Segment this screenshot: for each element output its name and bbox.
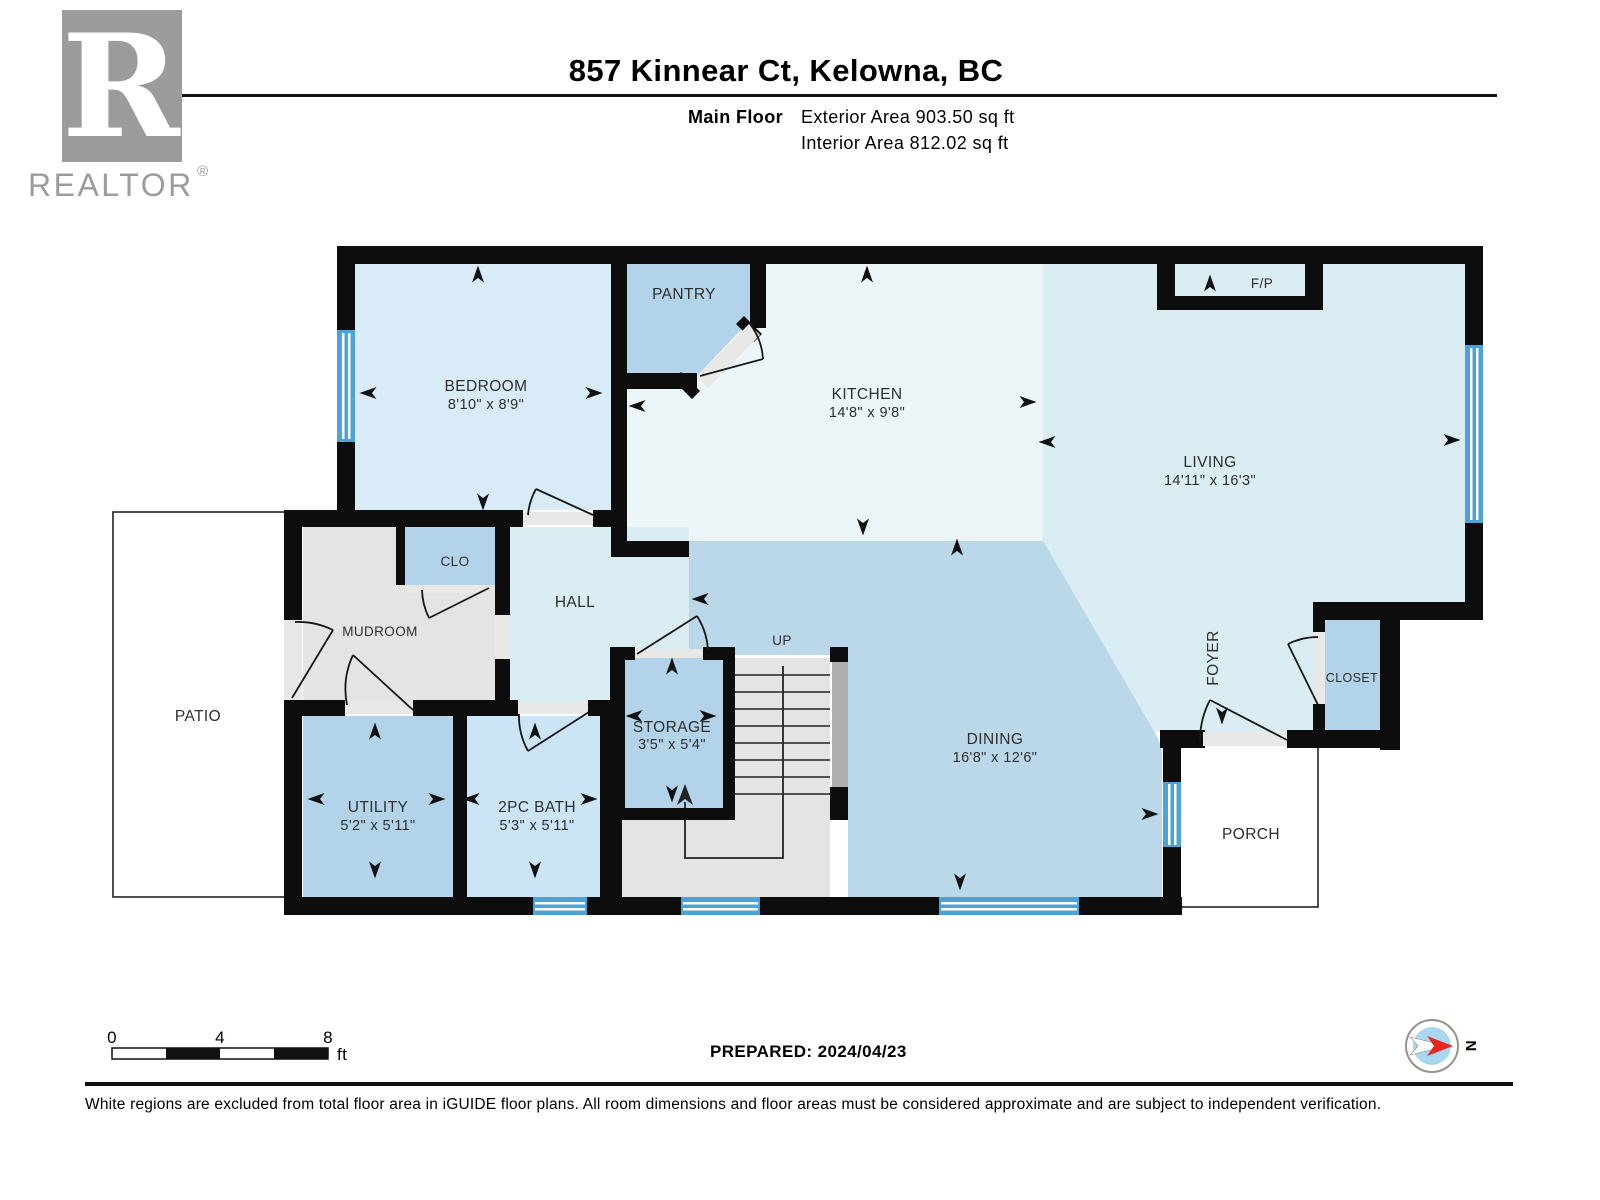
interior-area-label: Interior Area 812.02 sq ft <box>801 133 1009 153</box>
realtor-logo: R REALTOR ® <box>28 4 208 203</box>
realtor-logo-wordmark: REALTOR <box>28 167 194 203</box>
hall-label: HALL <box>555 594 595 611</box>
foyer-label: FOYER <box>1205 630 1222 685</box>
utility-dims: 5'2" x 5'11" <box>340 818 415 834</box>
porch-label: PORCH <box>1222 826 1280 843</box>
clo-label: CLO <box>441 554 470 569</box>
fireplace-label: F/P <box>1251 276 1273 291</box>
bedroom-window <box>337 330 355 442</box>
bath-label: 2PC BATH <box>498 799 576 816</box>
porch-side-window <box>1163 782 1181 847</box>
scale-tick-8: 8 <box>323 1028 333 1047</box>
patio-area <box>113 512 285 897</box>
pantry-label: PANTRY <box>652 286 716 303</box>
kitchen-dims: 14'8" x 9'8" <box>829 405 905 421</box>
closet-label: CLOSET <box>1326 671 1378 685</box>
utility-label: UTILITY <box>348 799 409 816</box>
dining-window <box>939 897 1079 915</box>
header: R REALTOR ® 857 Kinnear Ct, Kelowna, BC … <box>28 4 1497 203</box>
scale-tick-4: 4 <box>215 1028 225 1047</box>
patio-door-threshold <box>284 620 302 700</box>
patio-label: PATIO <box>175 708 221 725</box>
bath-dims: 5'3" x 5'11" <box>499 818 574 834</box>
page-title: 857 Kinnear Ct, Kelowna, BC <box>569 53 1004 88</box>
mudroom-label: MUDROOM <box>342 624 418 639</box>
stair-handrail <box>832 662 848 787</box>
living-dims: 14'11" x 16'3" <box>1164 473 1256 489</box>
prepared-date-label: PREPARED: 2024/04/23 <box>710 1042 907 1061</box>
header-rule <box>75 94 1497 97</box>
bath-door-threshold <box>518 702 588 714</box>
compass-icon: N <box>1406 1020 1479 1072</box>
landing-window <box>681 897 760 915</box>
stairs-up-label: UP <box>772 633 792 648</box>
storage-label: STORAGE <box>633 719 711 736</box>
bedroom-door-threshold <box>523 512 593 525</box>
mudroom-hall-opening <box>495 615 510 659</box>
floor-plan-page: R REALTOR ® 857 Kinnear Ct, Kelowna, BC … <box>0 0 1600 1200</box>
scale-unit-label: ft <box>337 1045 347 1064</box>
footer: 0 4 8 ft PREPARED: 2024/04/23 N White re… <box>85 1020 1513 1113</box>
living-label: LIVING <box>1183 454 1236 471</box>
exterior-area-label: Exterior Area 903.50 sq ft <box>801 107 1015 127</box>
scale-bar-segment <box>166 1048 220 1059</box>
floor-plan-canvas: R REALTOR ® 857 Kinnear Ct, Kelowna, BC … <box>0 0 1600 1200</box>
closet-door-threshold <box>1313 632 1325 704</box>
storage-door-threshold <box>635 649 703 658</box>
disclaimer-text: White regions are excluded from total fl… <box>85 1096 1381 1113</box>
living-window <box>1465 345 1483 523</box>
porch-area <box>1166 742 1318 907</box>
scale-tick-0: 0 <box>107 1028 117 1047</box>
bedroom-label: BEDROOM <box>445 378 528 395</box>
scale-bar-segment <box>274 1048 328 1059</box>
bedroom-dims: 8'10" x 8'9" <box>448 397 524 413</box>
kitchen-label: KITCHEN <box>832 386 903 403</box>
realtor-logo-letter: R <box>62 4 181 170</box>
utility-door-threshold <box>345 702 413 714</box>
dining-label: DINING <box>967 731 1024 748</box>
clo-door-threshold <box>407 585 489 593</box>
dining-dims: 16'8" x 12'6" <box>953 750 1038 766</box>
bath-window <box>533 897 587 915</box>
floor-label: Main Floor <box>688 107 783 127</box>
registered-trademark-icon: ® <box>197 163 208 180</box>
scale-bar: 0 4 8 ft <box>107 1028 347 1064</box>
footer-rule <box>85 1082 1513 1086</box>
storage-dims: 3'5" x 5'4" <box>638 737 706 753</box>
compass-north-label: N <box>1462 1040 1479 1051</box>
